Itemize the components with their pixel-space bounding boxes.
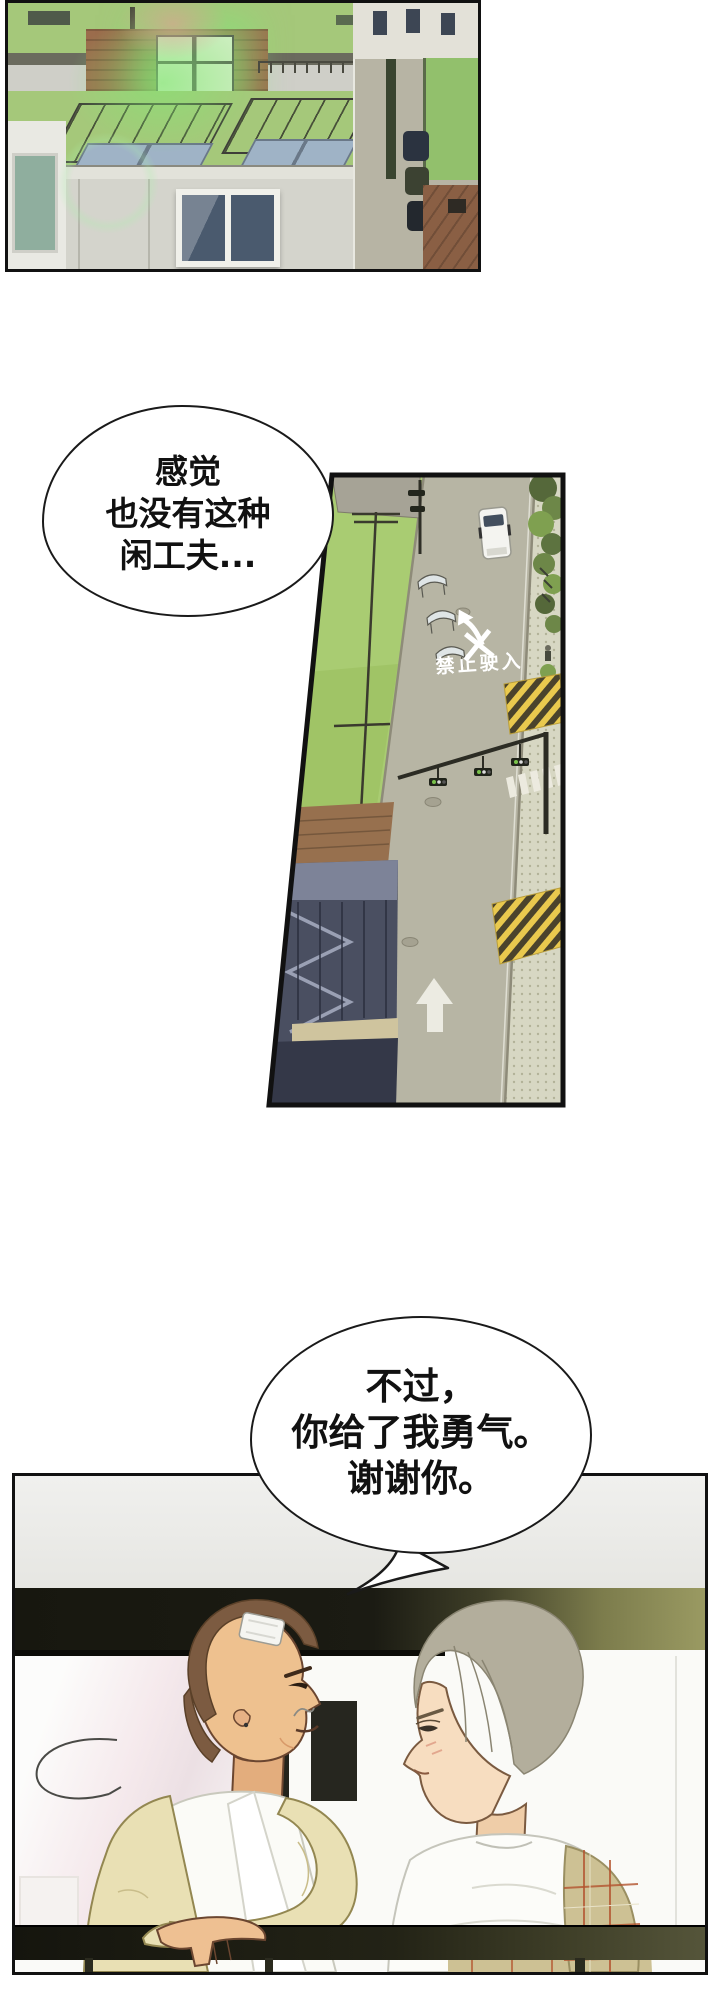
bubble2-line2: 你给了我勇气。 bbox=[252, 1410, 590, 1456]
window-tr-2 bbox=[406, 9, 420, 33]
car-1 bbox=[403, 131, 429, 161]
manhole bbox=[425, 798, 441, 807]
character-right-man bbox=[352, 1588, 672, 1972]
bubble2-line3: 谢谢你。 bbox=[252, 1456, 590, 1502]
window-tr-1 bbox=[373, 11, 387, 35]
glass-mark bbox=[291, 1704, 317, 1722]
panel-rooftop-scene bbox=[5, 0, 481, 272]
comic-page: 禁止驶入 bbox=[0, 0, 720, 2008]
manhole bbox=[402, 938, 418, 947]
lens-flare-pink bbox=[118, 0, 228, 59]
planter-column bbox=[386, 59, 396, 179]
lens-flare-ring bbox=[48, 123, 168, 243]
attic-window bbox=[448, 199, 466, 213]
speech-bubble-2: 不过， 你给了我勇气。 谢谢你。 bbox=[250, 1316, 592, 1554]
bubble1-line1: 感觉 bbox=[44, 451, 332, 493]
bubble1-line2: 也没有这种 bbox=[44, 493, 332, 535]
balcony-railing bbox=[15, 1925, 705, 1960]
finger-lines bbox=[213, 1940, 231, 1964]
hand-on-railing bbox=[137, 1910, 273, 1972]
earring bbox=[244, 1723, 248, 1727]
building-roof-topleft bbox=[332, 475, 420, 518]
green-roof-right bbox=[423, 58, 481, 180]
face bbox=[404, 1682, 510, 1823]
brick-building-corner bbox=[423, 185, 478, 269]
bubble2-line1: 不过， bbox=[252, 1364, 590, 1410]
speech-bubble-1: 感觉 也没有这种 闲工夫... bbox=[42, 405, 334, 617]
roof-furniture bbox=[28, 11, 70, 25]
wall-window bbox=[176, 189, 280, 267]
motion-swoosh bbox=[25, 1728, 145, 1812]
window-tr-3 bbox=[441, 13, 455, 35]
bubble1-line3: 闲工夫... bbox=[44, 535, 332, 577]
railing-post-1 bbox=[85, 1958, 93, 1972]
railing-post-3 bbox=[575, 1958, 585, 1972]
glass-faint-frame-line bbox=[675, 1656, 677, 1928]
hand bbox=[157, 1917, 265, 1966]
